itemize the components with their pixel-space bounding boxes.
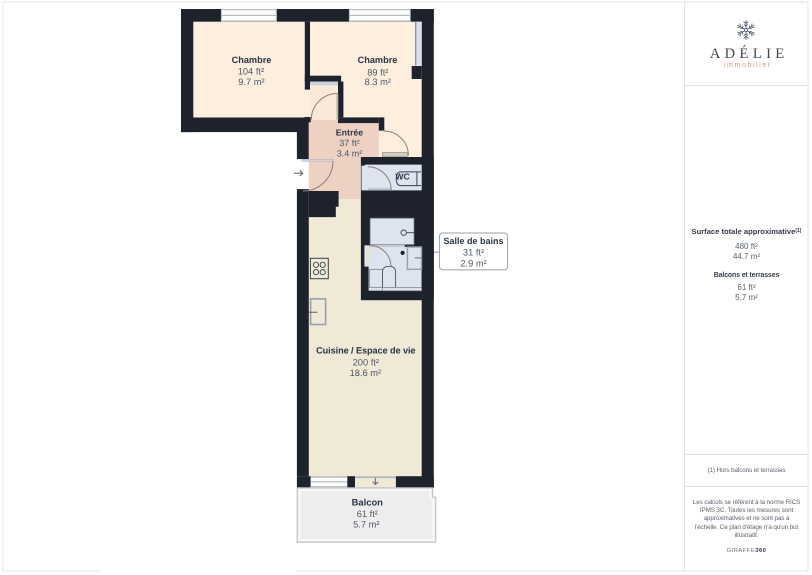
svg-text:WC: WC <box>395 171 409 181</box>
svg-text:8.3 m²: 8.3 m² <box>365 77 391 87</box>
svg-text:Entrée: Entrée <box>336 127 363 137</box>
svg-text:3.4 m²: 3.4 m² <box>337 149 363 159</box>
svg-text:37 ft²: 37 ft² <box>339 138 360 148</box>
svg-text:104 ft²: 104 ft² <box>238 67 264 77</box>
svg-text:61 ft²: 61 ft² <box>357 509 378 519</box>
svg-text:18.6 m²: 18.6 m² <box>350 368 382 378</box>
svg-text:Balcon: Balcon <box>352 497 384 508</box>
svg-text:2.9 m²: 2.9 m² <box>460 259 486 269</box>
svg-text:Chambre: Chambre <box>358 55 398 65</box>
svg-text:Chambre: Chambre <box>232 55 272 65</box>
svg-text:Salle de bains: Salle de bains <box>443 236 503 246</box>
svg-text:5.7 m²: 5.7 m² <box>353 519 379 529</box>
svg-text:31 ft²: 31 ft² <box>463 248 484 258</box>
svg-text:9.7 m²: 9.7 m² <box>238 77 264 87</box>
svg-text:Cuisine / Espace de vie: Cuisine / Espace de vie <box>316 346 415 356</box>
svg-text:200 ft²: 200 ft² <box>353 357 379 367</box>
svg-text:89 ft²: 89 ft² <box>367 67 388 77</box>
